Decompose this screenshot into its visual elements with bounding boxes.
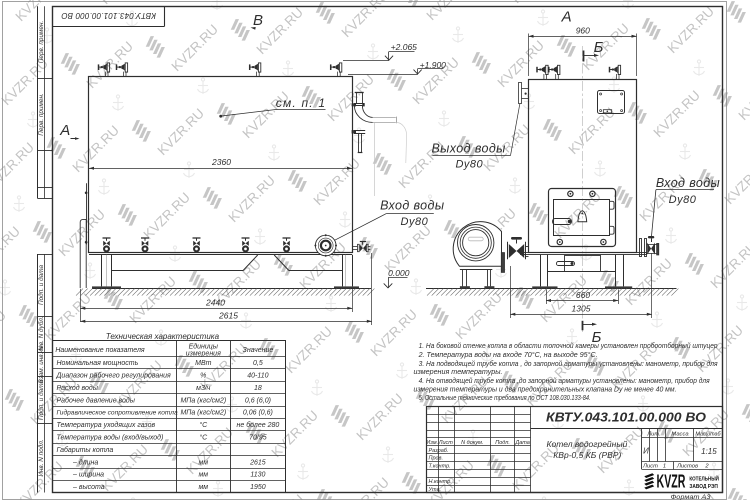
svg-text:Дата: Дата bbox=[514, 440, 530, 446]
svg-text:Масса: Масса bbox=[671, 432, 689, 438]
svg-text:Инв. N подл.: Инв. N подл. bbox=[37, 439, 45, 476]
svg-text:А: А bbox=[59, 122, 70, 139]
svg-text:Т.контр.: Т.контр. bbox=[429, 464, 451, 470]
svg-text:Вход воды: Вход воды bbox=[380, 199, 444, 213]
svg-text:2. Температура воды на входе: 2. Температура воды на входе 70°С, на вы… bbox=[418, 350, 598, 359]
svg-text:+2.065: +2.065 bbox=[391, 42, 418, 52]
svg-text:– ширина: – ширина bbox=[72, 472, 104, 479]
svg-text:МПа (кгс/см2): МПа (кгс/см2) bbox=[180, 397, 226, 404]
svg-text:2615: 2615 bbox=[249, 459, 266, 466]
svg-text:960: 960 bbox=[576, 25, 590, 35]
svg-text:мм: мм bbox=[198, 484, 208, 491]
svg-text:Номинальная мощность: Номинальная мощность bbox=[57, 360, 139, 367]
svg-text:Dy80: Dy80 bbox=[669, 194, 697, 206]
svg-text:Пров.: Пров. bbox=[429, 456, 444, 462]
svg-text:Масштаб: Масштаб bbox=[695, 432, 721, 438]
svg-text:измерения: измерения bbox=[186, 350, 221, 357]
svg-text:KVZR.RU: KVZR.RU bbox=[623, 256, 676, 309]
svg-text:2615: 2615 bbox=[218, 311, 238, 321]
svg-text:KVZR.RU: KVZR.RU bbox=[368, 307, 421, 360]
svg-text:1:15: 1:15 bbox=[701, 447, 717, 456]
svg-text:1: 1 bbox=[663, 464, 666, 470]
svg-text:40-110: 40-110 bbox=[247, 373, 268, 380]
svg-text:+1.900: +1.900 bbox=[420, 60, 447, 70]
svg-text:Расход воды: Расход воды bbox=[57, 384, 99, 392]
svg-text:KVZR.RU: KVZR.RU bbox=[155, 106, 208, 159]
svg-text:KVZR.RU: KVZR.RU bbox=[184, 425, 237, 478]
svg-text:Выход воды: Выход воды bbox=[431, 141, 505, 155]
svg-text:Вход воды: Вход воды bbox=[656, 176, 720, 190]
svg-text:Лист: Лист bbox=[642, 464, 658, 470]
svg-text:МПа (кгс/см2): МПа (кгс/см2) bbox=[180, 410, 226, 417]
svg-text:°С: °С bbox=[199, 434, 208, 442]
svg-text:KVZR.RU: KVZR.RU bbox=[552, 189, 605, 242]
svg-text:KVZR.RU: KVZR.RU bbox=[56, 207, 109, 260]
svg-text:KVZR.RU: KVZR.RU bbox=[226, 173, 279, 226]
svg-text:2: 2 bbox=[704, 464, 709, 470]
svg-text:Габариты котла: Габариты котла bbox=[57, 446, 114, 454]
svg-text:KVZR.RU: KVZR.RU bbox=[424, 0, 477, 23]
svg-text:Рабочее давление воды: Рабочее давление воды bbox=[57, 396, 136, 404]
svg-text:0.000: 0.000 bbox=[388, 268, 410, 278]
svg-text:KVZR.RU: KVZR.RU bbox=[70, 123, 123, 176]
svg-text:Листов: Листов bbox=[676, 464, 698, 470]
svg-text:Изм.: Изм. bbox=[426, 440, 438, 446]
svg-text:KVZR.RU: KVZR.RU bbox=[651, 88, 704, 141]
svg-text:°С: °С bbox=[199, 421, 208, 429]
svg-text:KVZR.RU: KVZR.RU bbox=[340, 475, 393, 500]
svg-text:Диапазон рабочего регулировани: Диапазон рабочего регулирования bbox=[56, 372, 172, 380]
svg-text:В: В bbox=[253, 12, 263, 29]
svg-text:70/95: 70/95 bbox=[249, 435, 267, 442]
svg-text:KVZR.RU: KVZR.RU bbox=[354, 391, 407, 444]
svg-text:Dy80: Dy80 bbox=[401, 216, 429, 228]
svg-text:см. п. 1: см. п. 1 bbox=[276, 96, 326, 110]
svg-text:KVZR: KVZR bbox=[657, 472, 686, 492]
svg-text:KVZR.RU: KVZR.RU bbox=[722, 155, 750, 208]
svg-text:KVZR.RU: KVZR.RU bbox=[169, 22, 222, 75]
svg-text:1. На боковой стенке котла в: 1. На боковой стенке котла в области топ… bbox=[419, 341, 718, 350]
svg-text:Значение: Значение bbox=[243, 347, 274, 354]
svg-text:Гидравлическое сопротивление к: Гидравлическое сопротивление котла bbox=[57, 409, 178, 417]
svg-text:не более 280: не более 280 bbox=[237, 421, 280, 429]
svg-text:МВт: МВт bbox=[195, 360, 212, 367]
svg-text:KVZR.RU: KVZR.RU bbox=[269, 408, 322, 461]
svg-text:Лит.: Лит. bbox=[646, 432, 661, 438]
svg-text:KVZR.RU: KVZR.RU bbox=[0, 308, 9, 361]
svg-text:Взам. инв. N: Взам. инв. N bbox=[38, 346, 45, 384]
svg-text:%: % bbox=[200, 373, 206, 380]
svg-text:18: 18 bbox=[254, 385, 262, 392]
svg-text:Перв. примен.: Перв. примен. bbox=[38, 21, 45, 63]
svg-text:КВр-0,5 КБ (РВР): КВр-0,5 КБ (РВР) bbox=[553, 450, 621, 460]
svg-text:KVZR.RU: KVZR.RU bbox=[708, 239, 750, 292]
svg-text:И: И bbox=[643, 447, 649, 456]
svg-text:Н.контр.: Н.контр. bbox=[429, 479, 452, 485]
svg-text:Подп.: Подп. bbox=[495, 440, 510, 446]
svg-text:KVZR.RU: KVZR.RU bbox=[127, 274, 180, 327]
svg-text:Утв.: Утв. bbox=[428, 487, 442, 493]
svg-text:KVZR.RU: KVZR.RU bbox=[0, 224, 23, 277]
svg-text:м3/ч: м3/ч bbox=[196, 385, 211, 392]
svg-text:KVZR.RU: KVZR.RU bbox=[141, 190, 194, 243]
svg-text:мм: мм bbox=[198, 459, 208, 466]
svg-text:– длина: – длина bbox=[72, 458, 98, 466]
svg-text:Лист: Лист bbox=[438, 440, 454, 446]
svg-text:Техническая характеристика: Техническая характеристика bbox=[106, 332, 220, 341]
svg-text:1950: 1950 bbox=[250, 484, 266, 491]
svg-text:Dy80: Dy80 bbox=[455, 159, 483, 171]
svg-text:N докум.: N докум. bbox=[461, 440, 483, 446]
svg-text:Перв. примен.: Перв. примен. bbox=[38, 93, 45, 135]
svg-text:0,5: 0,5 bbox=[253, 360, 263, 367]
svg-text:KVZR.RU: KVZR.RU bbox=[509, 0, 562, 6]
svg-text:Температура воды (вход/выход): Температура воды (вход/выход) bbox=[57, 434, 164, 442]
svg-text:Наименование показателя: Наименование показателя bbox=[55, 347, 145, 354]
svg-text:KVZR.RU: KVZR.RU bbox=[311, 156, 364, 209]
svg-text:660: 660 bbox=[576, 290, 590, 300]
svg-text:0,06 (0,6): 0,06 (0,6) bbox=[243, 410, 273, 417]
svg-text:5. Остальные технические треб: 5. Остальные технические требования по О… bbox=[419, 393, 591, 402]
svg-text:KVZR.RU: KVZR.RU bbox=[453, 290, 506, 343]
svg-text:измерения температуры.: измерения температуры. bbox=[414, 367, 503, 376]
svg-text:0,6 (6,0): 0,6 (6,0) bbox=[245, 397, 271, 404]
svg-text:Температура уходящих газов: Температура уходящих газов bbox=[57, 421, 156, 429]
svg-text:Разраб.: Разраб. bbox=[429, 448, 449, 454]
svg-text:КОТЕЛЬНЫЙ: КОТЕЛЬНЫЙ bbox=[689, 475, 719, 483]
svg-text:2440: 2440 bbox=[205, 298, 225, 308]
svg-text:Единицы: Единицы bbox=[189, 342, 219, 350]
svg-text:– высота: – высота bbox=[72, 484, 105, 491]
svg-text:KVZR.RU: KVZR.RU bbox=[665, 4, 718, 57]
svg-text:Подп. и дата: Подп. и дата bbox=[37, 265, 45, 305]
svg-text:KVZR.RU: KVZR.RU bbox=[736, 71, 750, 124]
svg-text:Подп. и дата: Подп. и дата bbox=[37, 380, 45, 420]
svg-text:Б: Б bbox=[594, 39, 604, 56]
svg-text:КВТУ.043.101.00.000 ВО: КВТУ.043.101.00.000 ВО bbox=[61, 11, 156, 20]
svg-text:мм: мм bbox=[198, 472, 208, 479]
svg-text:Котел водогрейный: Котел водогрейный bbox=[546, 439, 627, 449]
svg-text:1305: 1305 bbox=[572, 304, 591, 314]
svg-text:KVZR.RU: KVZR.RU bbox=[283, 324, 336, 377]
svg-text:2360: 2360 bbox=[211, 157, 231, 167]
svg-text:Формат А3: Формат А3 bbox=[671, 494, 711, 500]
svg-text:А: А bbox=[561, 9, 572, 26]
svg-text:KVZR.RU: KVZR.RU bbox=[0, 140, 37, 193]
svg-text:КВТУ.043.101.00.000 ВО: КВТУ.043.101.00.000 ВО bbox=[546, 411, 706, 425]
svg-text:ЗАВОД РЭП: ЗАВОД РЭП bbox=[689, 484, 718, 490]
svg-text:KVZR.RU: KVZR.RU bbox=[566, 105, 619, 158]
svg-text:KVZR.RU: KVZR.RU bbox=[325, 72, 378, 125]
svg-text:1130: 1130 bbox=[250, 472, 265, 479]
